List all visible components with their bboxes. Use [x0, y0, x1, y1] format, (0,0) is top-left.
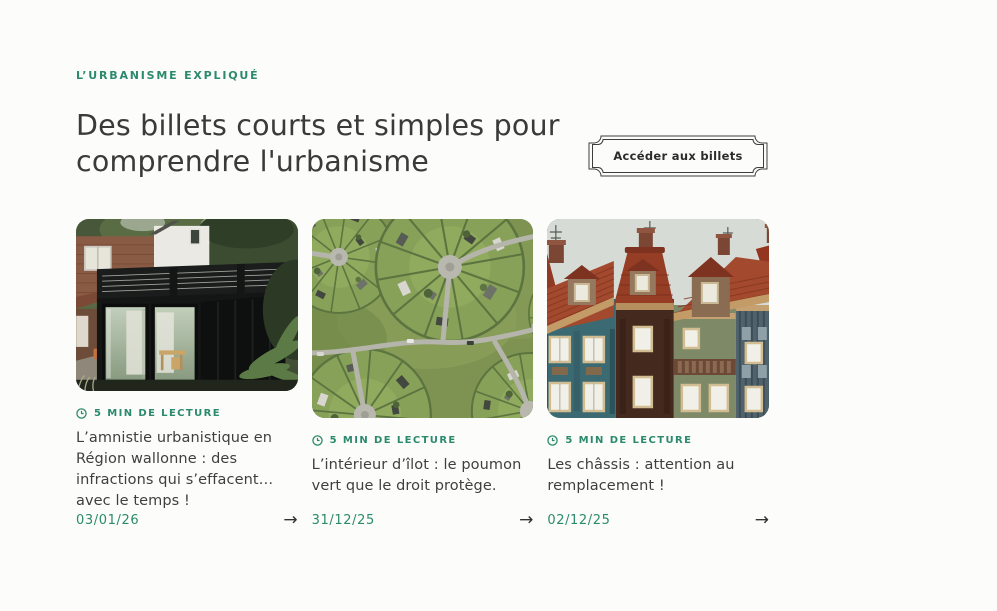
article-footer: 31/12/25 → [312, 512, 534, 529]
article-cards-grid: 5 MIN DE LECTURE L’amnistie urbanistique… [76, 219, 769, 529]
clock-icon [76, 408, 87, 419]
article-card[interactable]: 5 MIN DE LECTURE Les châssis : attention… [547, 219, 769, 529]
access-articles-button[interactable]: Accéder aux billets [587, 134, 769, 178]
section-eyebrow: L’URBANISME EXPLIQUÉ [76, 69, 769, 82]
article-date: 03/01/26 [76, 513, 139, 528]
blog-section: L’URBANISME EXPLIQUÉ Des billets courts … [0, 0, 845, 529]
page-title-line1: Des billets courts et simples pour [76, 109, 560, 142]
article-date: 02/12/25 [547, 513, 610, 528]
article-date: 31/12/25 [312, 513, 375, 528]
arrow-right-icon[interactable]: → [755, 512, 769, 529]
black-extension-house-illustration [76, 219, 298, 391]
reading-time: 5 MIN DE LECTURE [76, 408, 298, 419]
clock-icon [547, 435, 558, 446]
reading-time-label: 5 MIN DE LECTURE [330, 435, 457, 446]
reading-time-label: 5 MIN DE LECTURE [565, 435, 692, 446]
arrow-right-icon[interactable]: → [519, 512, 533, 529]
arrow-right-icon[interactable]: → [283, 512, 297, 529]
article-card[interactable]: 5 MIN DE LECTURE L’intérieur d’îlot : le… [312, 219, 534, 529]
article-title[interactable]: Les châssis : attention au remplacement … [547, 455, 769, 497]
reading-time: 5 MIN DE LECTURE [547, 435, 769, 446]
page-title-line2: comprendre l'urbanisme [76, 145, 429, 178]
aerial-circular-neighborhood-illustration [312, 219, 534, 418]
article-card[interactable]: 5 MIN DE LECTURE L’amnistie urbanistique… [76, 219, 298, 529]
article-footer: 03/01/26 → [76, 512, 298, 529]
article-thumbnail[interactable] [547, 219, 769, 418]
clock-icon [312, 435, 323, 446]
section-header: L’URBANISME EXPLIQUÉ Des billets courts … [76, 69, 769, 180]
article-title[interactable]: L’amnistie urbanistique en Région wallon… [76, 428, 298, 512]
reading-time: 5 MIN DE LECTURE [312, 435, 534, 446]
access-articles-label: Accéder aux billets [587, 134, 769, 178]
colorful-townhouses-illustration [547, 219, 769, 418]
article-title[interactable]: L’intérieur d’îlot : le poumon vert que … [312, 455, 534, 497]
article-thumbnail[interactable] [76, 219, 298, 391]
article-footer: 02/12/25 → [547, 512, 769, 529]
article-thumbnail[interactable] [312, 219, 534, 418]
reading-time-label: 5 MIN DE LECTURE [94, 408, 221, 419]
